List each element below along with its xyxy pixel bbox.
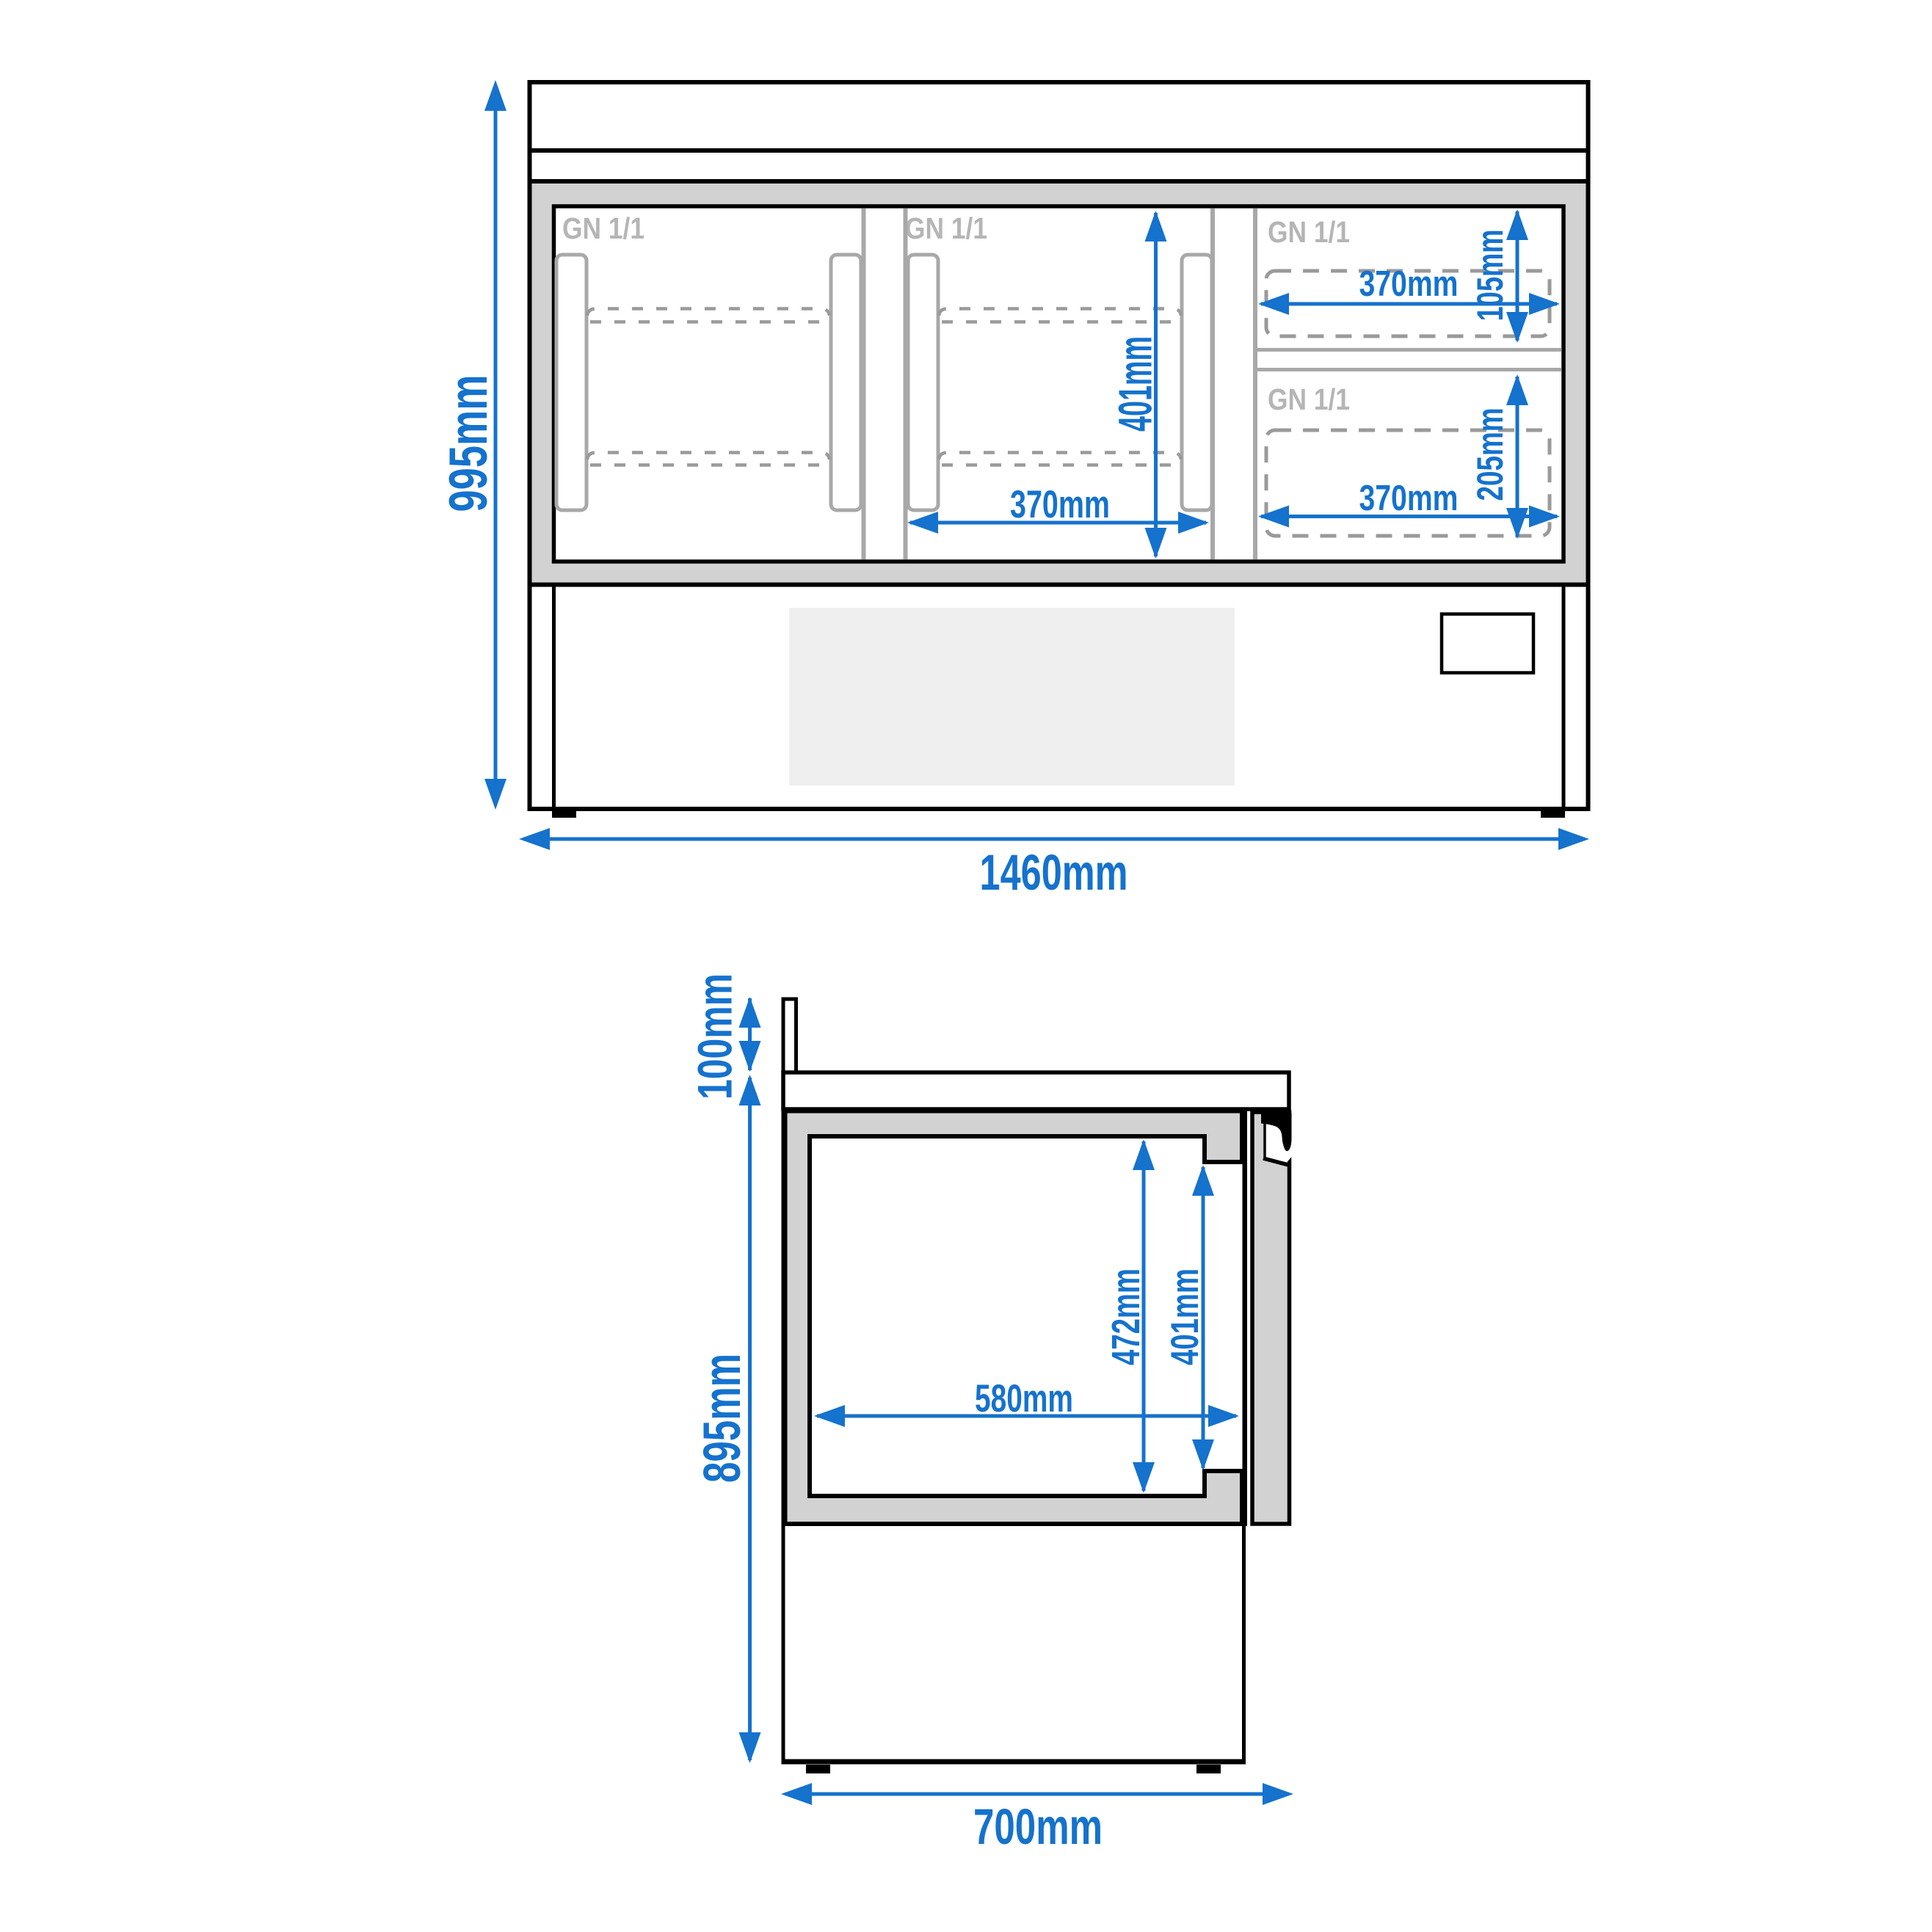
svg-text:GN 1/1: GN 1/1 [905,211,987,245]
svg-text:370mm: 370mm [1359,479,1459,518]
svg-text:995mm: 995mm [439,375,498,512]
svg-text:370mm: 370mm [1010,483,1110,526]
svg-text:895mm: 895mm [694,1354,752,1483]
svg-text:580mm: 580mm [975,1377,1073,1420]
svg-text:401mm: 401mm [1163,1268,1207,1365]
svg-text:1460mm: 1460mm [980,844,1128,901]
svg-text:100mm: 100mm [688,973,742,1100]
svg-text:105mm: 105mm [1470,230,1511,322]
svg-text:700mm: 700mm [973,1798,1103,1855]
svg-text:GN 1/1: GN 1/1 [1268,215,1350,249]
svg-text:GN 1/1: GN 1/1 [1268,382,1350,416]
svg-text:370mm: 370mm [1359,264,1459,304]
svg-text:401mm: 401mm [1109,336,1162,432]
svg-text:205mm: 205mm [1470,408,1511,501]
svg-text:472mm: 472mm [1104,1268,1148,1365]
svg-text:GN 1/1: GN 1/1 [562,211,644,245]
